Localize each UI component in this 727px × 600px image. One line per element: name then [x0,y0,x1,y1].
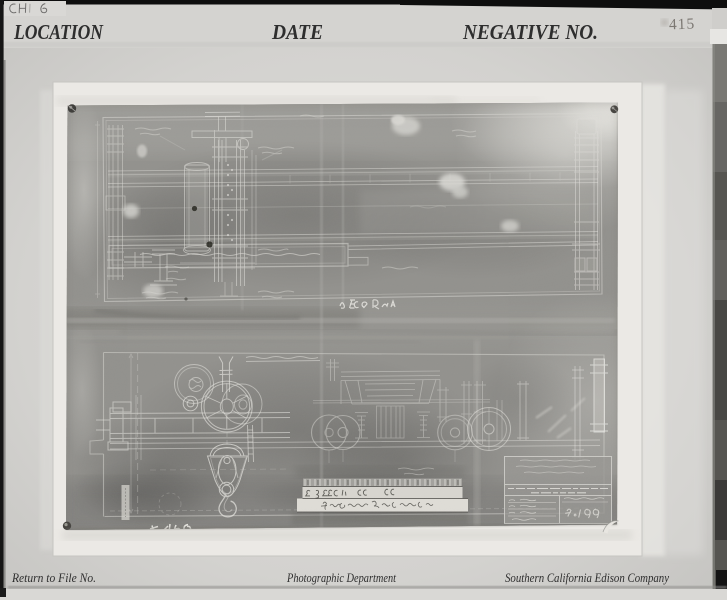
svg-text:NEGATIVE NO.: NEGATIVE NO. [462,20,598,44]
svg-text:Photographic Department: Photographic Department [286,570,396,585]
svg-text:Return to File No.: Return to File No. [11,570,96,585]
svg-text:LOCATION: LOCATION [13,20,104,44]
svg-text:Southern California Edison Com: Southern California Edison Company [505,570,669,585]
svg-text:DATE: DATE [271,20,323,44]
svg-text:415: 415 [669,15,696,33]
